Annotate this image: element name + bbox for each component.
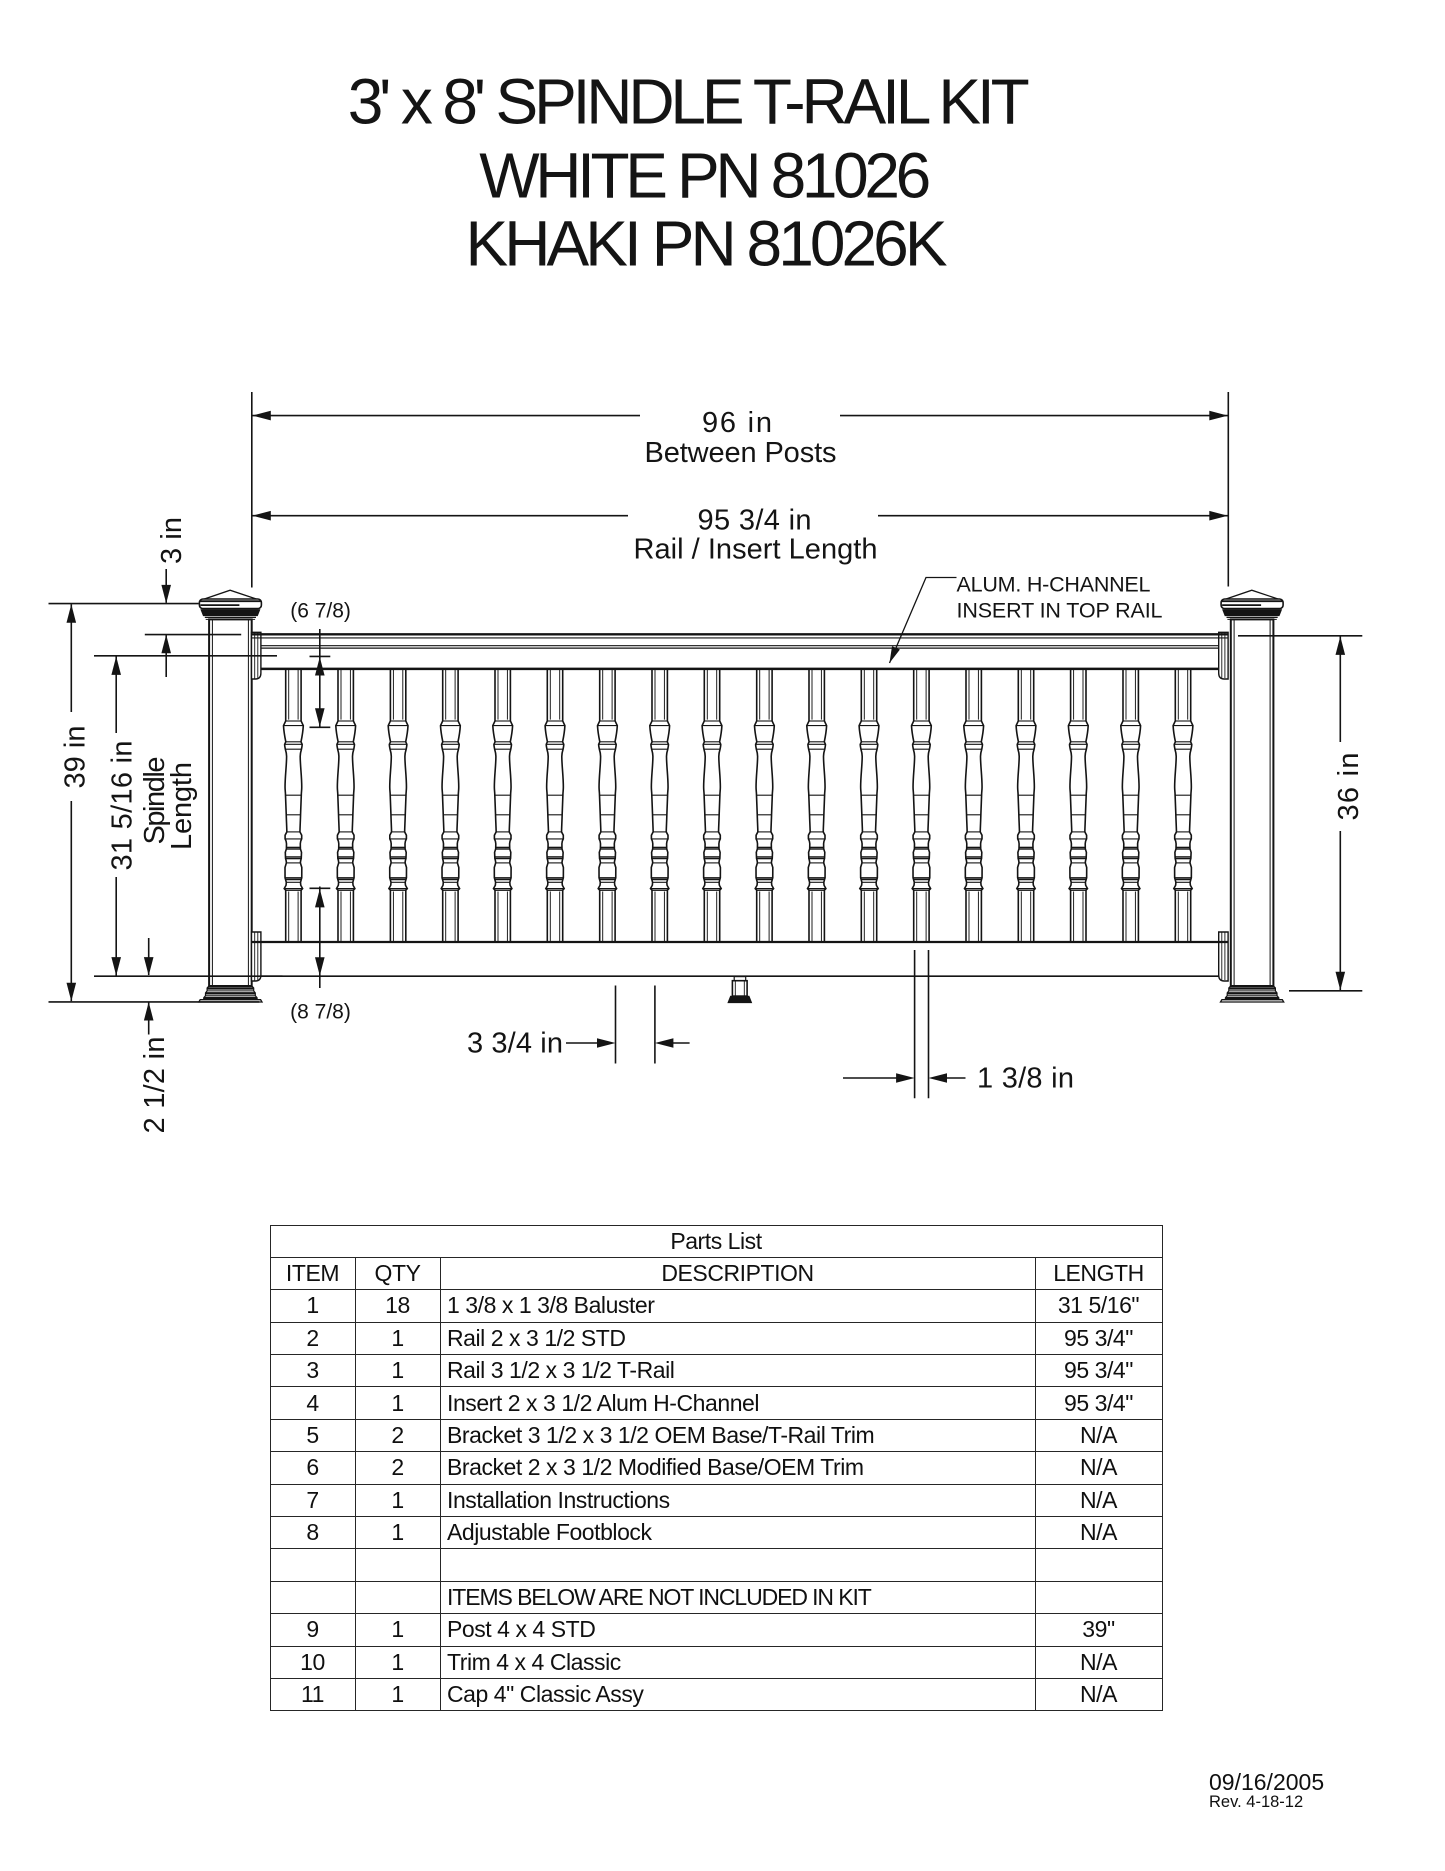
svg-text:(6 7/8): (6 7/8) <box>290 600 351 623</box>
svg-text:3' x 8' SPINDLE T-RAIL KIT: 3' x 8' SPINDLE T-RAIL KIT <box>348 65 1030 137</box>
svg-text:Length: Length <box>166 762 198 850</box>
svg-text:(8 7/8): (8 7/8) <box>290 1001 351 1024</box>
svg-text:ALUM. H-CHANNEL: ALUM. H-CHANNEL <box>957 573 1151 597</box>
svg-text:Between Posts: Between Posts <box>645 437 837 469</box>
svg-text:36 in: 36 in <box>1333 753 1365 821</box>
svg-text:1 3/8 in: 1 3/8 in <box>977 1063 1074 1095</box>
svg-text:39 in: 39 in <box>59 726 91 789</box>
svg-text:WHITE PN 81026: WHITE PN 81026 <box>479 140 931 212</box>
svg-text:2 1/2 in: 2 1/2 in <box>139 1037 171 1134</box>
svg-text:31 5/16 in: 31 5/16 in <box>107 741 139 871</box>
svg-text:3 3/4 in: 3 3/4 in <box>467 1028 563 1060</box>
svg-text:95 3/4 in: 95 3/4 in <box>698 505 812 537</box>
svg-text:Rail / Insert Length: Rail / Insert Length <box>634 534 878 566</box>
svg-text:KHAKI PN 81026K: KHAKI PN 81026K <box>466 208 948 280</box>
svg-text:96 in: 96 in <box>702 407 772 439</box>
svg-text:3 in: 3 in <box>156 517 188 564</box>
svg-text:INSERT IN TOP RAIL: INSERT IN TOP RAIL <box>957 599 1163 623</box>
